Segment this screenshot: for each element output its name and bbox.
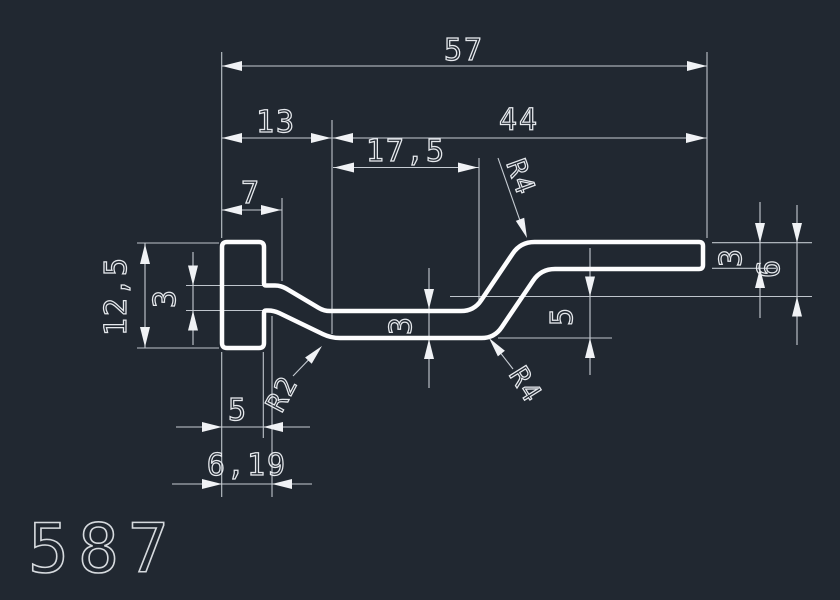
profile-outline[interactable] (222, 242, 703, 348)
drawing-canvas[interactable]: 57 13 44 17,5 7 12,5 3 (0, 0, 840, 600)
dim-label: 5 (228, 393, 248, 428)
dim-label: 5 (545, 306, 580, 326)
dim-head-depth[interactable]: 7 (222, 176, 282, 215)
dim-label: 57 (444, 33, 484, 68)
part-number: 587 (28, 510, 178, 589)
dim-label: 3 (714, 247, 749, 267)
dim-left-span[interactable]: 13 (222, 105, 332, 143)
dim-web-flat-length[interactable]: 17,5 (333, 134, 479, 173)
radius-label-r2[interactable]: R2 (260, 346, 322, 417)
dim-label: 6,19 (207, 448, 287, 483)
dim-label: 3 (384, 315, 419, 335)
radius-label: R2 (260, 370, 305, 417)
extension-lines (137, 52, 812, 497)
dim-label: 3 (148, 288, 183, 308)
dim-label: 12,5 (99, 256, 134, 336)
dim-web-thickness-at-head[interactable]: 3 (148, 252, 198, 345)
radius-label-r4-top[interactable]: R4 (498, 155, 541, 238)
dim-head-to-slope[interactable]: 6,19 (172, 448, 312, 489)
dim-label: 17,5 (366, 134, 446, 169)
dim-head-height[interactable]: 12,5 (99, 243, 150, 348)
radius-label: R4 (502, 362, 548, 409)
dim-label: 6 (752, 258, 787, 278)
radius-label-r4-bottom[interactable]: R4 (489, 338, 548, 409)
dim-label: 7 (241, 176, 261, 211)
dim-web-thickness-mid[interactable]: 3 (384, 268, 434, 388)
dim-label: 13 (256, 105, 296, 140)
dim-label: 44 (499, 103, 539, 138)
radius-label: R4 (500, 155, 542, 200)
dim-total-width[interactable]: 57 (222, 33, 707, 71)
